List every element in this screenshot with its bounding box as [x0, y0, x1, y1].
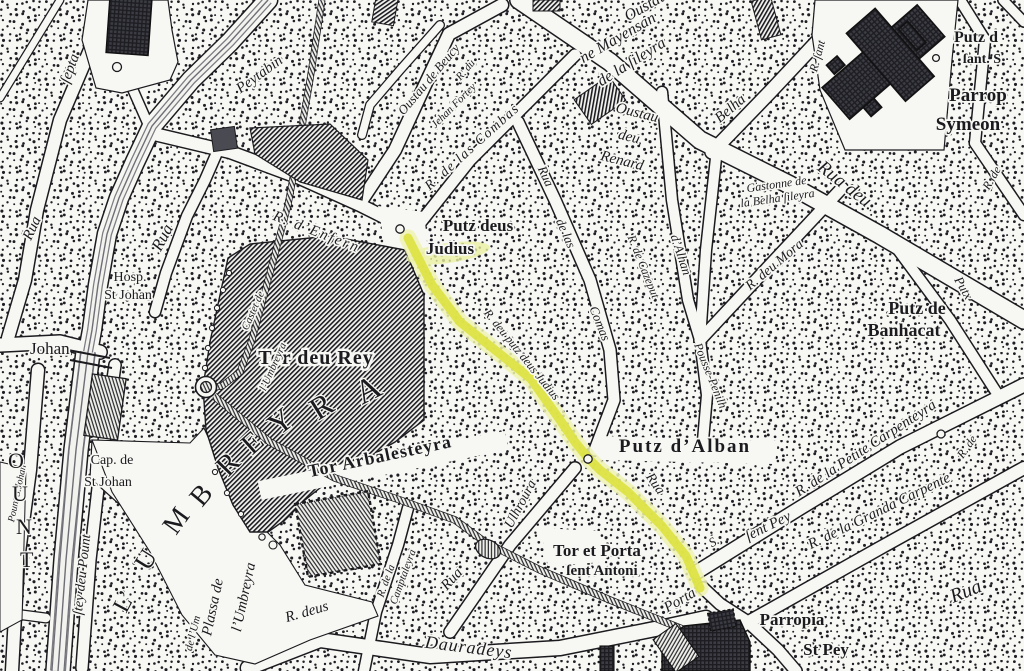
svg-text:Cap. de: Cap. de: [91, 453, 134, 468]
svg-text:Banhacat: Banhacat: [867, 320, 940, 340]
svg-text:Putz de: Putz de: [888, 298, 946, 318]
svg-text:Parrop: Parrop: [949, 85, 1007, 106]
svg-text:St Johan: St Johan: [84, 475, 132, 490]
svg-text:Putz d: Putz d: [954, 29, 998, 46]
svg-text:Johan: Johan: [30, 339, 70, 358]
svg-text:St Johan: St Johan: [104, 288, 152, 303]
svg-text:U: U: [12, 481, 28, 506]
svg-text:N: N: [16, 514, 32, 539]
svg-text:T: T: [20, 547, 34, 572]
svg-text:Putz d’Alban: Putz d’Alban: [619, 436, 751, 457]
svg-text:Parropia: Parropia: [760, 610, 825, 629]
svg-text:Putz deus: Putz deus: [443, 216, 514, 235]
svg-text:Symeon: Symeon: [936, 114, 1001, 135]
svg-text:Tor et Porta: Tor et Porta: [553, 541, 641, 560]
svg-text:O: O: [8, 448, 24, 473]
svg-text:Hosp.: Hosp.: [113, 270, 146, 285]
svg-text:St Pey: St Pey: [803, 640, 849, 659]
svg-text:Judius: Judius: [426, 239, 475, 258]
svg-text:ſent Antoni: ſent Antoni: [566, 563, 637, 579]
svg-text:ſant. S: ſant. S: [963, 52, 1001, 67]
